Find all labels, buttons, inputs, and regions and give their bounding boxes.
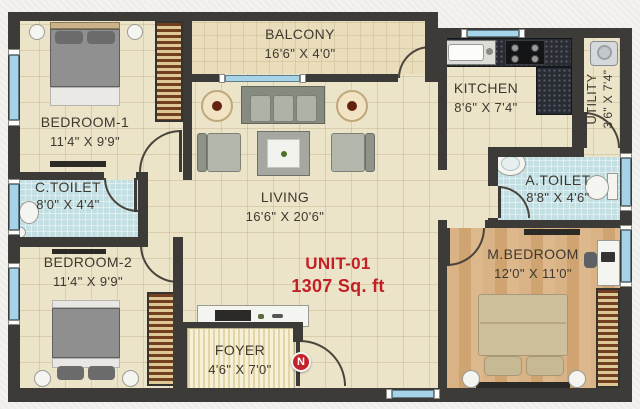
ctoilet-window — [9, 184, 19, 230]
mbedroom-sidetable-left — [462, 370, 480, 388]
foyer-dims: 4'6" X 7'0" — [190, 360, 290, 379]
living-sofa-cushion-2 — [273, 95, 294, 122]
bedroom2-dims: 11'4" X 9'9" — [23, 272, 153, 291]
bedroom1-bed-headboard — [50, 22, 120, 29]
kitchen-sink-basin — [448, 44, 484, 61]
atoilet-label: A.TOILET 8'8" X 4'6" — [502, 172, 614, 206]
atoilet-dims: 8'8" X 4'6" — [502, 189, 614, 206]
wall-outer-right — [620, 28, 632, 402]
floor-plan: N BALCONY 16'6" X 4'0" BEDROOM-1 11'4" X… — [0, 0, 640, 409]
kitchen-window-cap-left — [461, 29, 467, 38]
wall-kitchen-top — [425, 28, 632, 38]
mbedroom-window-cap-bottom — [620, 282, 632, 287]
bedroom2-wardrobe — [147, 292, 175, 386]
living-sofa-cushion-1 — [250, 95, 271, 122]
mbedroom-wardrobe — [596, 288, 620, 388]
balcony-dims: 16'6" X 4'0" — [225, 44, 375, 63]
foyer-name: FOYER — [190, 341, 290, 360]
bedroom1-wardrobe — [155, 21, 183, 122]
north-label: N — [297, 356, 305, 368]
wall-foyer-left — [178, 322, 187, 388]
bedroom2-bed — [52, 308, 120, 358]
mbedroom-name: M.BEDROOM — [462, 245, 604, 264]
mbedroom-window-cap-top — [620, 225, 632, 230]
ctoilet-window-cap-top — [8, 179, 20, 184]
stove-burner-1 — [511, 44, 519, 52]
console-item-2 — [272, 314, 283, 318]
bedroom1-dims: 11'4" X 9'9" — [20, 132, 150, 151]
unit-annotation: UNIT-01 1307 Sq. ft — [275, 252, 401, 298]
console-tv — [215, 310, 251, 321]
atoilet-name: A.TOILET — [502, 172, 614, 189]
wall-bedroom1-right — [183, 12, 192, 180]
wall-outer-bottom — [8, 388, 632, 402]
stove-burner-3 — [511, 55, 519, 63]
bedroom2-window — [9, 268, 19, 320]
mbedroom-door-leaf — [447, 228, 450, 266]
atoilet-basin-bowl — [501, 156, 520, 171]
bedroom2-pillow-right — [88, 366, 115, 380]
mbedroom-label: M.BEDROOM 12'0" X 11'0" — [462, 245, 604, 283]
unit-number: UNIT-01 — [275, 252, 401, 275]
living-name: LIVING — [225, 188, 345, 207]
bedroom1-pillow-left — [55, 31, 83, 44]
bedroom1-window — [9, 55, 19, 120]
living-balcony-window-cap-left — [219, 74, 225, 83]
bedroom1-label: BEDROOM-1 11'4" X 9'9" — [20, 113, 150, 151]
living-sofa-cushion-3 — [296, 95, 317, 122]
stove-burner-4 — [531, 55, 539, 63]
wall-kitchen-atoilet-top — [488, 147, 584, 157]
living-balcony-window-cap-right — [300, 74, 306, 83]
living-balcony-window — [225, 75, 300, 82]
living-label: LIVING 16'6" X 20'6" — [225, 188, 345, 226]
living-coffee-table-plant — [281, 151, 287, 157]
wall-mbedroom-left — [438, 228, 447, 388]
ctoilet-window-cap-bottom — [8, 230, 20, 235]
living-sidetable-right-pot — [347, 101, 357, 111]
mbedroom-window — [621, 230, 631, 282]
bedroom2-sidetable-right — [122, 370, 139, 387]
wall-balcony-right — [425, 12, 438, 82]
mbedroom-bed-fold — [480, 322, 566, 324]
bedroom2-window-cap-top — [8, 263, 20, 268]
mbedroom-pillow-right — [526, 356, 564, 376]
living-armchair-right-back — [365, 133, 375, 172]
stove-burner-2 — [531, 44, 539, 52]
utility-dims: 3'6" X 7'4" — [600, 44, 616, 154]
living-dims: 16'6" X 20'6" — [225, 207, 345, 226]
bedroom1-nightstand-left — [29, 24, 45, 40]
utility-label: UTILITY 3'6" X 7'4" — [584, 44, 616, 154]
kitchen-window — [467, 30, 519, 37]
living-armchair-right-seat — [331, 133, 365, 172]
living-armchair-left-seat — [207, 133, 241, 172]
bedroom1-name: BEDROOM-1 — [20, 113, 150, 132]
unit-area: 1307 Sq. ft — [275, 275, 401, 298]
mbedroom-pillow-left — [484, 356, 522, 376]
balcony-label: BALCONY 16'6" X 4'0" — [225, 25, 375, 63]
bedroom2-name: BEDROOM-2 — [23, 253, 153, 272]
bedroom1-window-cap-bottom — [8, 120, 20, 126]
living-south-window — [392, 390, 434, 398]
bedroom1-pillow-right — [87, 31, 115, 44]
bedroom2-bed-head — [52, 300, 120, 308]
mbedroom-bed-duvet — [478, 294, 568, 356]
ctoilet-dims: 8'0" X 4'4" — [26, 196, 110, 213]
atoilet-window-cap-bottom — [620, 206, 632, 211]
atoilet-door-leaf — [498, 186, 501, 218]
console-item-1 — [258, 314, 264, 319]
kitchen-faucet — [486, 48, 493, 55]
living-south-window-cap-left — [386, 389, 392, 399]
wall-ctoilet-bottom — [8, 237, 140, 247]
living-sidetable-left-pot — [212, 101, 222, 111]
mbedroom-sidetable-right — [568, 370, 586, 388]
wall-mbedroom-top — [485, 220, 620, 228]
north-compass: N — [291, 352, 311, 372]
ctoilet-label: C.TOILET 8'0" X 4'4" — [26, 179, 110, 213]
wall-balcony-south-right — [300, 74, 398, 82]
wall-foyer-right — [293, 322, 303, 342]
ctoilet-name: C.TOILET — [26, 179, 110, 196]
atoilet-window — [621, 158, 631, 206]
wall-outer-top — [8, 12, 438, 21]
atoilet-window-cap-top — [620, 153, 632, 158]
wall-atoilet-left-upper — [488, 147, 498, 186]
bedroom1-nightstand-right — [127, 24, 143, 40]
bedroom1-door-leaf — [179, 130, 182, 172]
foyer-label: FOYER 4'6" X 7'0" — [190, 341, 290, 379]
wall-ctoilet-right — [138, 172, 148, 247]
living-armchair-left-back — [197, 133, 207, 172]
bedroom1-tv-unit — [50, 161, 106, 167]
mbedroom-dims: 12'0" X 11'0" — [462, 264, 604, 283]
living-south-window-cap-right — [434, 389, 440, 399]
bedroom2-label: BEDROOM-2 11'4" X 9'9" — [23, 253, 153, 291]
kitchen-window-cap-right — [519, 29, 525, 38]
bedroom2-window-cap-bottom — [8, 320, 20, 325]
bedroom2-sidetable-left — [34, 370, 51, 387]
ctoilet-door-leaf — [134, 178, 137, 212]
wall-mbedroom-top-stub — [438, 220, 447, 228]
kitchen-dims: 8'6" X 7'4" — [430, 98, 542, 117]
kitchen-name: KITCHEN — [430, 79, 542, 98]
wall-foyer-top — [178, 322, 303, 328]
wall-utility-left — [572, 38, 584, 148]
kitchen-label: KITCHEN 8'6" X 7'4" — [430, 79, 542, 117]
bedroom1-bed-foot — [50, 87, 120, 106]
balcony-name: BALCONY — [225, 25, 375, 44]
utility-name: UTILITY — [584, 44, 600, 154]
bedroom2-pillow-left — [57, 366, 84, 380]
bedroom1-window-cap-top — [8, 49, 20, 55]
mbedroom-tv-unit — [524, 229, 580, 235]
